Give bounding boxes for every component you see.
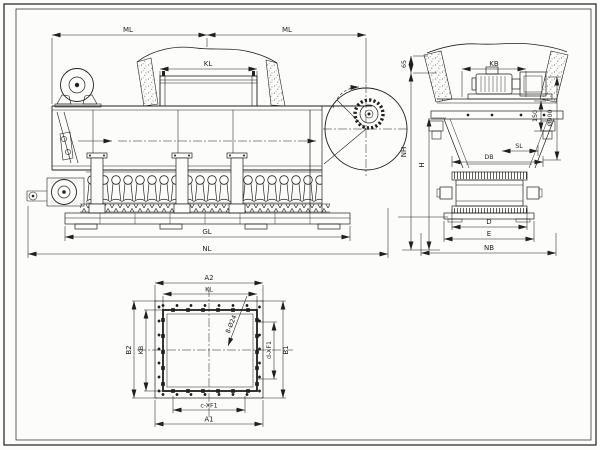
apron-pans	[86, 172, 322, 203]
dim-label-ml-right: ML	[282, 26, 292, 34]
dim-label-c-xf1: c-XF1	[200, 403, 217, 410]
sheet-border	[4, 4, 596, 445]
plan-view: A2 KL B2 KB B1 d-XF1 c-XF1 A1 8-Ø24	[125, 274, 293, 427]
dim-label-kl: KL	[204, 60, 213, 68]
dim-label-e: E	[487, 230, 491, 238]
dim-label-ml-left: ML	[123, 26, 133, 34]
end-view: KB SL DB D E NB 65 NH H 150 Ø900	[398, 43, 568, 256]
side-view-dimensions	[28, 35, 388, 258]
dim-label-gl: GL	[202, 228, 211, 236]
drawing-sheet: ML ML KL GL NL	[0, 0, 600, 450]
dim-label-kb-plan: KB	[138, 346, 145, 354]
end-view-dimensions	[398, 56, 561, 256]
coupling	[512, 79, 520, 89]
dim-label-d: D	[486, 218, 491, 226]
front-guide	[27, 191, 47, 201]
dim-label-b1: B1	[282, 345, 290, 354]
pedestal-bearing	[55, 69, 101, 108]
dim-label-h: H	[418, 162, 426, 167]
drive-unit	[468, 67, 552, 99]
takeup-wheel	[47, 178, 84, 206]
dim-label-nh: NH	[400, 147, 408, 158]
tension-linkage	[57, 112, 78, 163]
hopper-side	[137, 47, 285, 106]
base-frame	[65, 213, 350, 229]
dim-label-150: 150	[532, 110, 539, 122]
discharge-drum	[437, 172, 542, 222]
motor-terminal-box	[486, 67, 498, 74]
engineering-drawing: ML ML KL GL NL	[0, 0, 600, 450]
dim-label-d-xf1: d-XF1	[266, 341, 273, 359]
chain-run	[80, 204, 330, 212]
dim-label-900: Ø900	[546, 110, 554, 127]
dim-label-nl: NL	[202, 245, 211, 253]
dim-label-db: DB	[484, 154, 493, 161]
funnel	[444, 119, 554, 168]
dim-label-kb: KB	[489, 60, 499, 68]
dim-label-65: 65	[401, 60, 408, 68]
dim-label-sl: SL	[515, 143, 523, 150]
hopper-end	[424, 43, 568, 102]
dim-label-a1: A1	[204, 416, 213, 424]
drive-sprocket	[323, 84, 409, 176]
side-view: ML ML KL GL NL	[27, 26, 409, 258]
motor	[476, 74, 512, 94]
dim-label-a2: A2	[204, 274, 213, 282]
dim-label-b2: B2	[125, 345, 133, 354]
dim-label-kl-plan: KL	[205, 287, 213, 294]
dim-label-nb: NB	[484, 244, 494, 252]
